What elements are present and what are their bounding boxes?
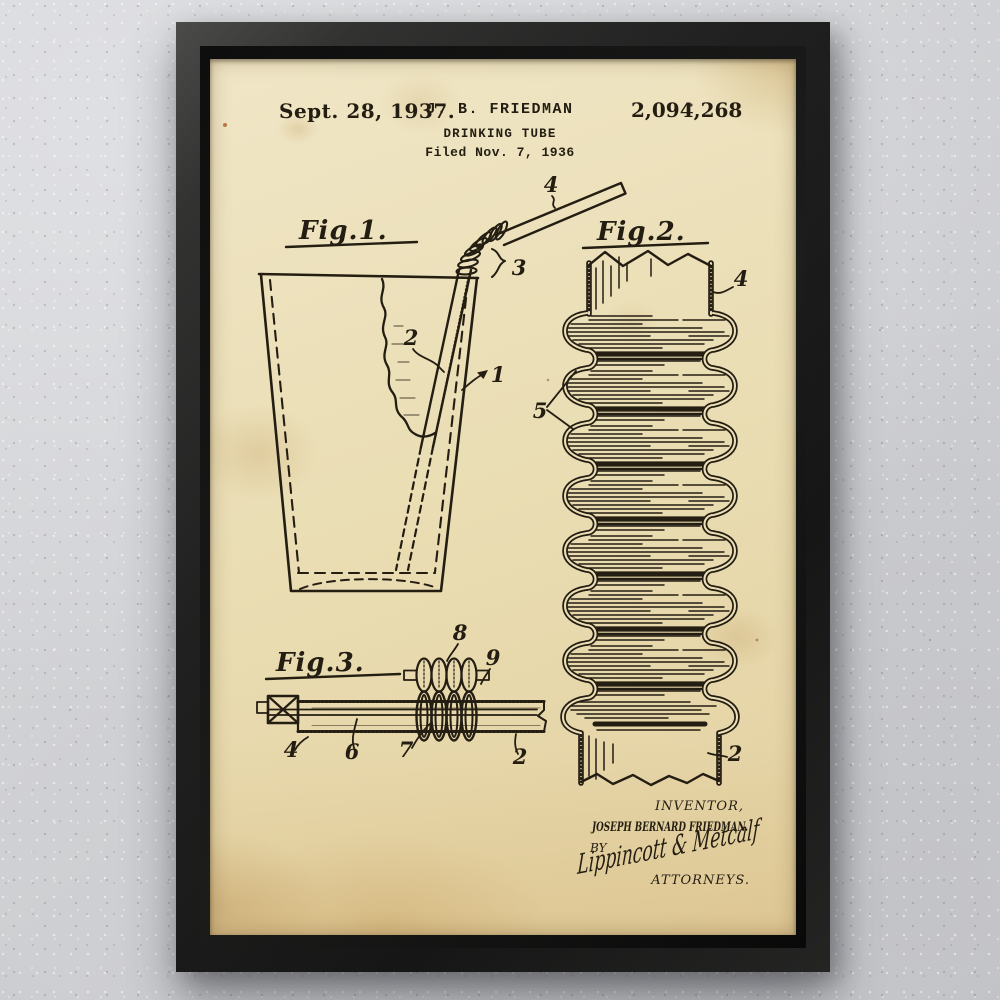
fig2-ref-5: 5 [533, 398, 548, 423]
fig1-label: Fig.1. [298, 216, 388, 246]
fig3-formed-ribs [417, 692, 477, 741]
fig3-reference-labels: 8 9 4 6 7 2 [284, 620, 528, 769]
fig3-ref-9: 9 [486, 645, 501, 670]
patent-inventor-header: J. B. FRIEDMAN [426, 101, 573, 118]
figure-3: Fig.3. [257, 620, 546, 769]
attorneys-caption: ATTORNEYS. [650, 873, 750, 888]
inventor-caption: INVENTOR, [654, 799, 744, 814]
signature-block: INVENTOR, JOSEPH BERNARD FRIEDMAN. BY Li… [570, 799, 769, 888]
fig3-label: Fig.3. [275, 648, 365, 678]
figure-1: Fig.1. [259, 172, 626, 591]
patent-drawing: Sept. 28, 1937. J. B. FRIEDMAN DRINKING … [210, 59, 796, 935]
fig1-ref-3: 3 [512, 255, 527, 280]
fig3-ref-8: 8 [452, 620, 468, 645]
fig3-ref-7: 7 [399, 737, 414, 762]
patent-filed-date: Filed Nov. 7, 1936 [425, 145, 574, 160]
fig1-straw [396, 183, 626, 570]
fig2-ref-4: 4 [734, 266, 749, 291]
patent-title: DRINKING TUBE [443, 127, 556, 141]
patent-header: Sept. 28, 1937. J. B. FRIEDMAN DRINKING … [279, 98, 742, 160]
fig1-ref-1: 1 [491, 362, 506, 387]
fig1-ref-2: 2 [403, 325, 419, 350]
fig3-forming-discs [404, 659, 489, 692]
fig3-ref-4: 4 [284, 737, 299, 762]
fig1-straw-elbow [456, 220, 509, 275]
fig3-ref-6: 6 [345, 739, 360, 764]
figure-2: Fig.2. [533, 217, 749, 785]
patent-paper: Sept. 28, 1937. J. B. FRIEDMAN DRINKING … [210, 59, 796, 935]
fig1-breakaway-line [381, 279, 435, 437]
fig3-mandrel-rod [268, 710, 537, 716]
fig2-label: Fig.2. [596, 217, 686, 247]
fig1-reference-labels: 4 3 2 1 [403, 172, 559, 390]
picture-frame: Sept. 28, 1937. J. B. FRIEDMAN DRINKING … [176, 22, 830, 972]
fig1-ref-4: 4 [544, 172, 559, 197]
fig1-glass [259, 274, 478, 591]
fig2-ref-2: 2 [727, 741, 743, 766]
fig3-ref-2: 2 [512, 744, 528, 769]
patent-number: 2,094,268 [631, 98, 742, 122]
